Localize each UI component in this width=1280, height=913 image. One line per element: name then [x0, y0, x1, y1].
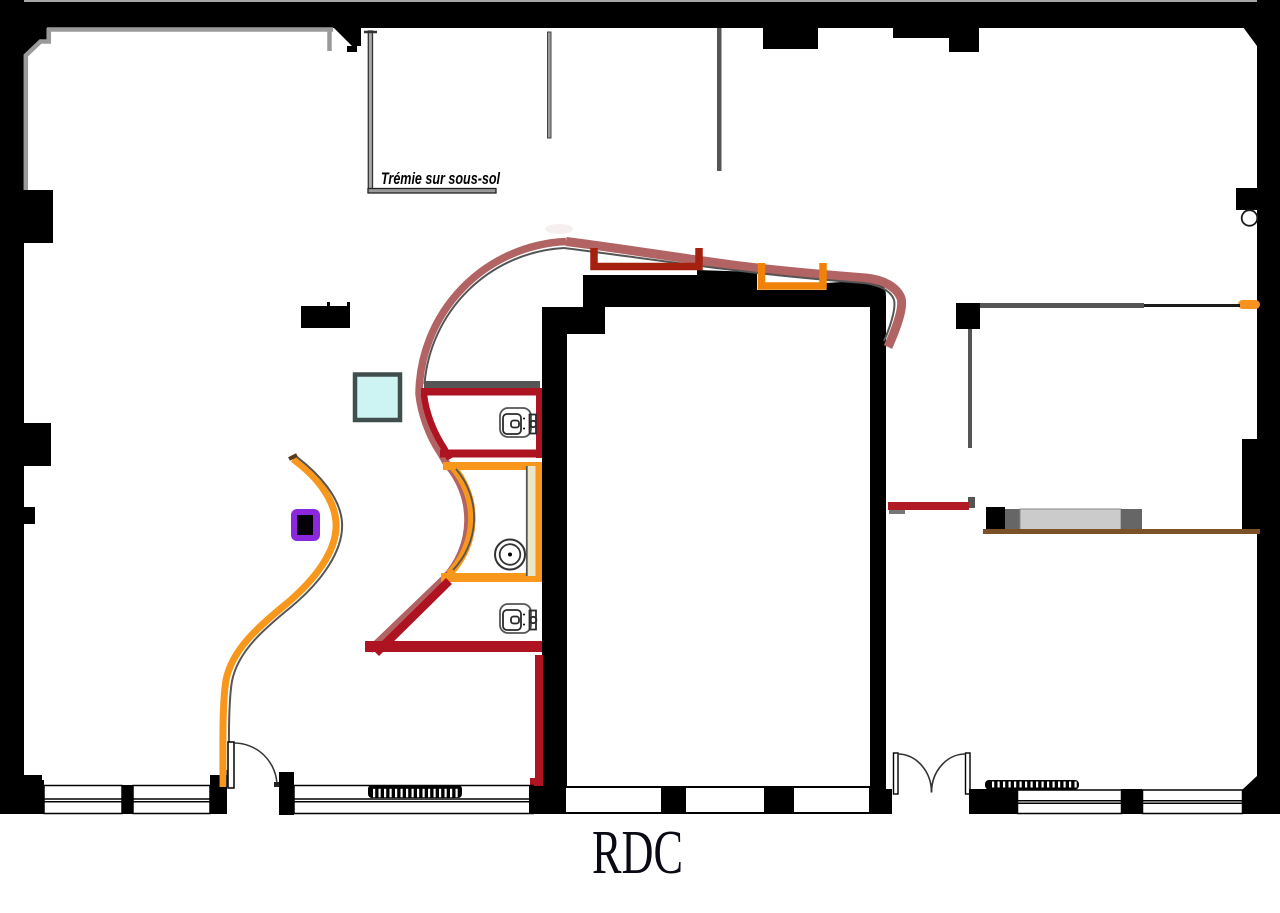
- svg-text:RDC: RDC: [592, 819, 683, 887]
- svg-text:Trémie sur sous-sol: Trémie sur sous-sol: [381, 169, 501, 188]
